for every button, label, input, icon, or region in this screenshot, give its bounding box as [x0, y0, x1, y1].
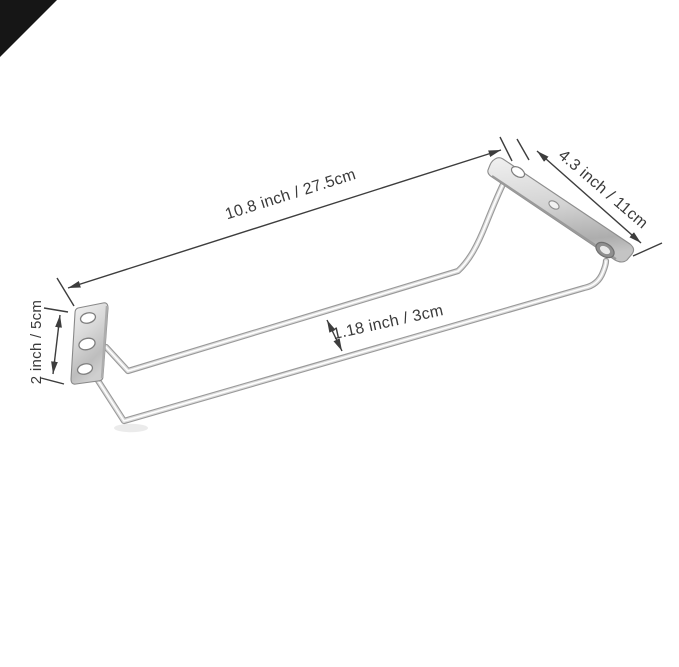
stemware-rack-dimension-drawing: 10.8 inch / 27.5cm 4.3 inch / 11cm 2 inc…: [0, 0, 679, 667]
bracket-height-label: 2 inch / 5cm: [28, 300, 45, 384]
product-image: 10.8 inch / 27.5cm 4.3 inch / 11cm 2 inc…: [0, 0, 679, 667]
left-mounting-plate: [71, 303, 108, 384]
wire-shadow: [114, 424, 148, 432]
